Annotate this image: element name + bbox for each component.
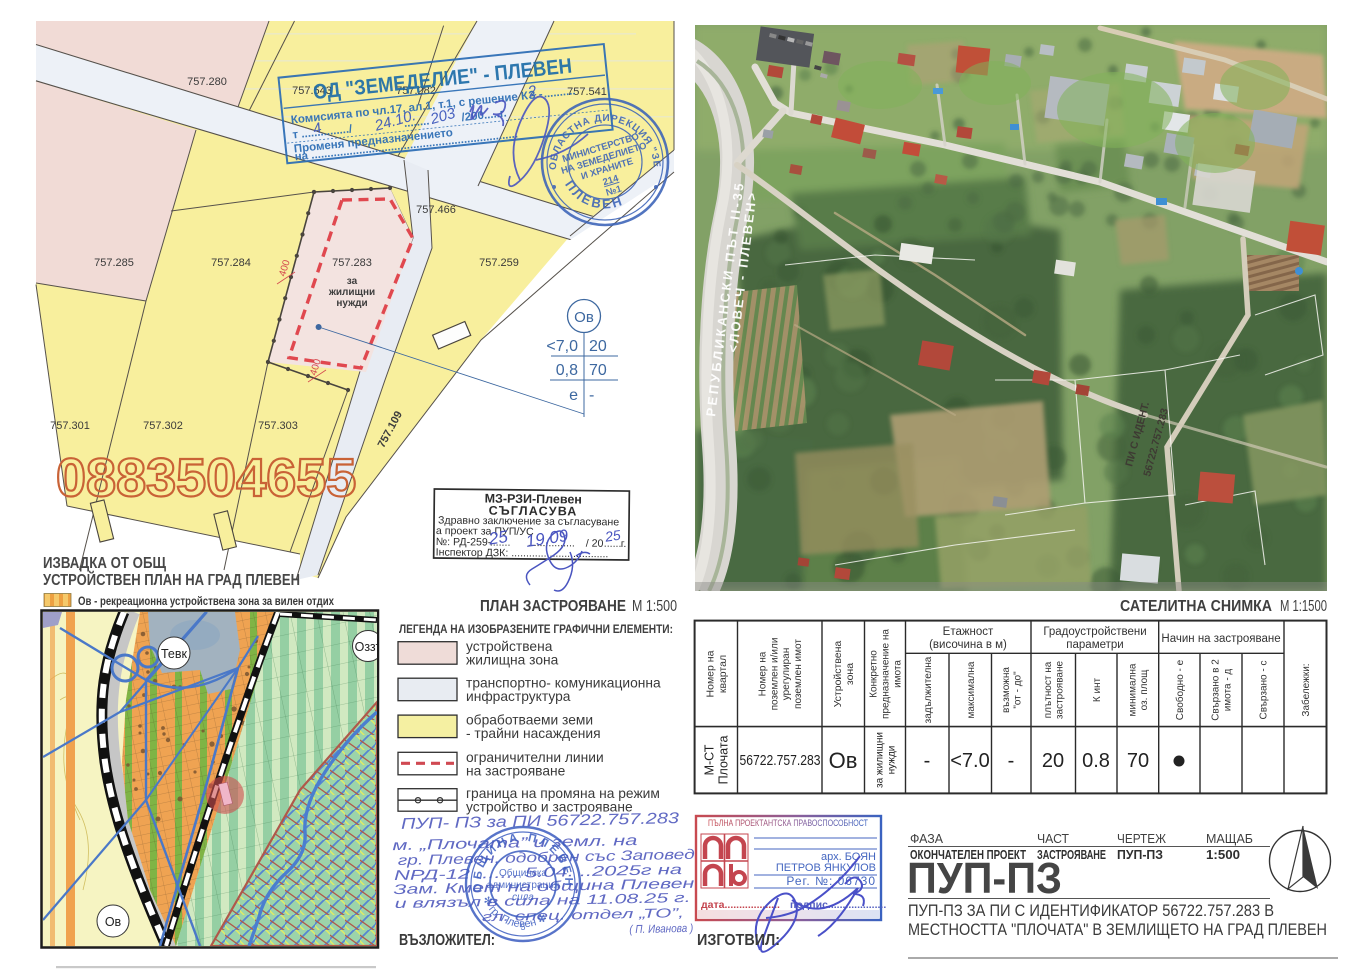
svg-text:Номер на: Номер на xyxy=(758,651,769,696)
svg-text:25: 25 xyxy=(603,527,622,545)
svg-text:поземлен и/или: поземлен и/или xyxy=(769,638,780,711)
svg-text:70: 70 xyxy=(1127,750,1149,772)
svg-text:ВЪЗЛОЖИТЕЛ:: ВЪЗЛОЖИТЕЛ: xyxy=(399,932,495,949)
svg-text:25: 25 xyxy=(487,527,510,549)
svg-text:ПУП-ПЗ: ПУП-ПЗ xyxy=(907,854,1062,903)
svg-text:56722.757.283: 56722.757.283 xyxy=(740,753,821,769)
svg-text:Етажност: Етажност xyxy=(943,626,994,638)
svg-text:Плочата: Плочата xyxy=(717,736,731,785)
svg-text:Свързано - с: Свързано - с xyxy=(1259,660,1270,719)
svg-text:757.280: 757.280 xyxy=(187,76,227,88)
svg-text:757.301: 757.301 xyxy=(50,420,90,432)
svg-text:г.: г. xyxy=(621,538,627,550)
svg-text:инфраструктура: инфраструктура xyxy=(466,689,571,704)
svg-text:параметри: параметри xyxy=(1066,639,1123,651)
svg-text:ФАЗА: ФАЗА xyxy=(910,831,943,846)
svg-text:<7.0: <7.0 xyxy=(950,750,989,772)
svg-text:урегулиран: урегулиран xyxy=(781,648,792,701)
svg-text:К инт: К инт xyxy=(1092,677,1103,702)
svg-text:ПУП-ПЗ: ПУП-ПЗ xyxy=(1117,848,1163,862)
svg-text:е: е xyxy=(569,387,578,404)
svg-text:подпис....................: подпис.................... xyxy=(790,899,886,911)
svg-text:ПЛАН ЗАСТРОЯВАНЕ: ПЛАН ЗАСТРОЯВАНЕ xyxy=(480,598,626,615)
svg-text:за жилищни: за жилищни xyxy=(875,732,886,788)
svg-text:Свързано в 2: Свързано в 2 xyxy=(1211,659,1222,721)
svg-text:Начин на застрояване: Начин на застрояване xyxy=(1161,633,1280,645)
svg-text:минимална: минимална xyxy=(1127,663,1138,716)
svg-text:Забележки:: Забележки: xyxy=(1300,663,1312,716)
svg-text:5: 5 xyxy=(520,922,525,932)
svg-text:М 1:1500: М 1:1500 xyxy=(1280,598,1327,615)
svg-text:ИЗВАДКА ОТ ОБЩ: ИЗВАДКА ОТ ОБЩ xyxy=(43,555,166,572)
svg-text:Ов - рекреационна устройствена: Ов - рекреационна устройствена зона за в… xyxy=(78,596,335,608)
svg-text:0883504655: 0883504655 xyxy=(56,448,356,508)
svg-text:плътност на: плътност на xyxy=(1043,661,1054,718)
svg-text:МЕСТНОСТТА "ПЛОЧАТА" В ЗЕМЛИЩЕ: МЕСТНОСТТА "ПЛОЧАТА" В ЗЕМЛИЩЕТО НА ГРАД… xyxy=(908,920,1327,939)
svg-text:Градоустройствени: Градоустройствени xyxy=(1043,626,1146,638)
svg-text:жилищна зона: жилищна зона xyxy=(466,653,559,668)
svg-text:нужди: нужди xyxy=(336,298,367,309)
svg-text:757.284: 757.284 xyxy=(211,257,251,269)
svg-text:ЧАСТ: ЧАСТ xyxy=(1037,831,1069,846)
svg-text:Ов: Ов xyxy=(105,915,122,929)
svg-text:сила: сила xyxy=(512,892,534,903)
svg-text:за: за xyxy=(347,276,358,287)
svg-text:поземлен имот: поземлен имот xyxy=(793,639,804,709)
svg-text:имота - д: имота - д xyxy=(1222,669,1233,712)
svg-text:застрояване: застрояване xyxy=(1055,661,1066,720)
svg-text:ЧЕРТЕЖ: ЧЕРТЕЖ xyxy=(1117,831,1166,846)
svg-text:имота: имота xyxy=(892,660,903,688)
svg-text:70: 70 xyxy=(589,362,607,379)
svg-text:квартал: квартал xyxy=(717,655,729,693)
svg-text:757.302: 757.302 xyxy=(143,420,183,432)
svg-text:757.466: 757.466 xyxy=(416,204,456,216)
svg-text:Ов: Ов xyxy=(574,309,594,326)
svg-text:ПЪЛНА ПРОЕКТАНТСКА ПРАВОСПОСОБ: ПЪЛНА ПРОЕКТАНТСКА ПРАВОСПОСОБНОСТ xyxy=(708,818,869,828)
svg-text:Тевк: Тевк xyxy=(161,647,188,661)
svg-text:зона: зона xyxy=(844,663,856,685)
svg-text:възможна: възможна xyxy=(1001,667,1012,713)
svg-text:САТЕЛИТНА СНИМКА: САТЕЛИТНА СНИМКА xyxy=(1120,598,1272,615)
svg-text:ИЗГОТВИЛ:: ИЗГОТВИЛ: xyxy=(697,932,780,949)
svg-text:М 1:500: М 1:500 xyxy=(632,598,677,615)
svg-text:ЛЕГЕНДА НА ИЗОБРАЗЕНИТЕ ГРАФИЧ: ЛЕГЕНДА НА ИЗОБРАЗЕНИТЕ ГРАФИЧНИ ЕЛЕМЕНТ… xyxy=(399,622,673,636)
svg-text:(височина в м): (височина в м) xyxy=(929,639,1007,651)
svg-text:М-СТ: М-СТ xyxy=(702,744,716,775)
svg-text:( П. Иванова ): ( П. Иванова ) xyxy=(629,923,693,936)
svg-text:ПЕТРОВ ЯНКУЛОВ: ПЕТРОВ ЯНКУЛОВ xyxy=(776,862,876,874)
svg-text:жилищни: жилищни xyxy=(328,287,375,298)
svg-text:0.8: 0.8 xyxy=(1082,750,1110,772)
svg-text:администрация: администрация xyxy=(487,880,559,891)
svg-text:Устройствена: Устройствена xyxy=(832,641,844,708)
svg-text:на застрояване: на застрояване xyxy=(466,763,566,778)
svg-text:задължителна: задължителна xyxy=(923,656,934,723)
svg-text:757.303: 757.303 xyxy=(258,420,298,432)
svg-text:<7,0: <7,0 xyxy=(546,338,578,355)
svg-text:-: - xyxy=(589,387,594,404)
svg-text:МАЩАБ: МАЩАБ xyxy=(1206,831,1253,846)
svg-text:757.283: 757.283 xyxy=(332,257,372,269)
svg-text:-: - xyxy=(1008,750,1015,772)
svg-text:УСТРОЙСТВЕН ПЛАН НА ГРАД ПЛЕВЕ: УСТРОЙСТВЕН ПЛАН НА ГРАД ПЛЕВЕН xyxy=(43,571,300,589)
svg-text:0,8: 0,8 xyxy=(556,362,578,379)
svg-text:Общинска: Общинска xyxy=(499,867,547,879)
svg-text:757.259: 757.259 xyxy=(479,257,519,269)
svg-text:757.285: 757.285 xyxy=(94,257,134,269)
svg-text:максимална: максимална xyxy=(966,661,977,718)
svg-text:нужди: нужди xyxy=(886,746,897,775)
svg-text:Свободно - е: Свободно - е xyxy=(1174,659,1186,720)
svg-text:предназначение на: предназначение на xyxy=(881,629,892,719)
svg-text:Конкретно: Конкретно xyxy=(869,650,880,698)
svg-text:Ов: Ов xyxy=(829,748,858,773)
svg-text:Номер на: Номер на xyxy=(705,650,717,697)
svg-text:ПУП-ПЗ ЗА ПИ С ИДЕНТИФИКАТОР 5: ПУП-ПЗ ЗА ПИ С ИДЕНТИФИКАТОР 56722.757.2… xyxy=(908,901,1274,920)
svg-text:20: 20 xyxy=(1042,750,1064,772)
svg-text:оз. площ: оз. площ xyxy=(1139,670,1150,711)
svg-text:"от - до": "от - до" xyxy=(1013,671,1024,709)
svg-text:- трайни насаждения: - трайни насаждения xyxy=(466,726,601,741)
svg-text:20: 20 xyxy=(589,338,607,355)
svg-text:-: - xyxy=(924,750,931,772)
svg-text:1:500: 1:500 xyxy=(1206,848,1240,862)
